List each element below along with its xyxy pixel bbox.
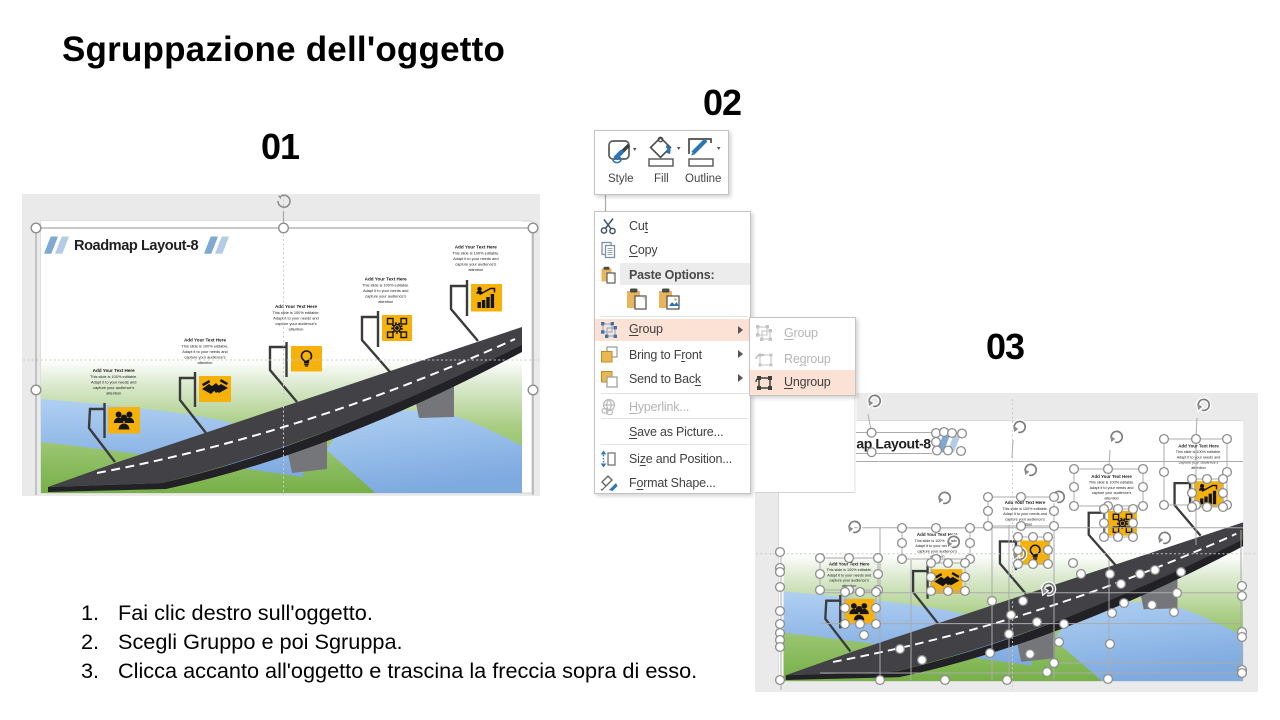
svg-text:Outline: Outline (685, 173, 721, 185)
svg-text:Fill: Fill (654, 173, 669, 185)
svg-text:Style: Style (608, 173, 634, 185)
